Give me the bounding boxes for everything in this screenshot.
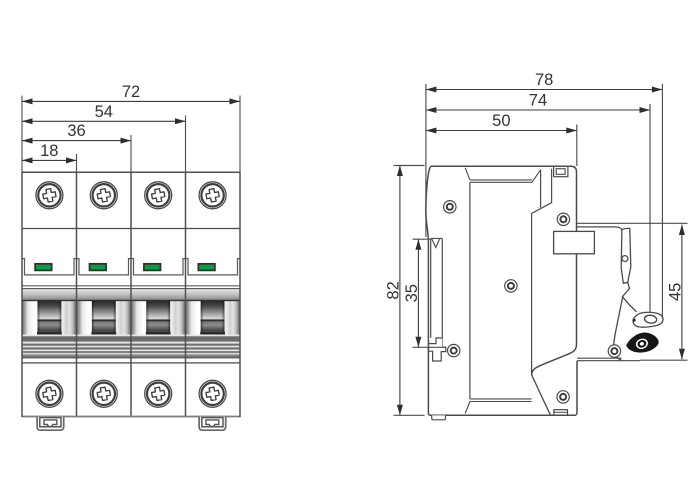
svg-text:54: 54 xyxy=(95,103,113,121)
svg-text:18: 18 xyxy=(40,142,58,160)
svg-text:82: 82 xyxy=(385,281,403,299)
svg-text:35: 35 xyxy=(403,284,421,302)
svg-text:78: 78 xyxy=(535,71,553,89)
svg-text:72: 72 xyxy=(122,83,140,101)
svg-text:36: 36 xyxy=(67,122,85,140)
svg-text:45: 45 xyxy=(667,283,685,301)
svg-text:74: 74 xyxy=(529,92,547,110)
svg-text:50: 50 xyxy=(492,112,510,130)
